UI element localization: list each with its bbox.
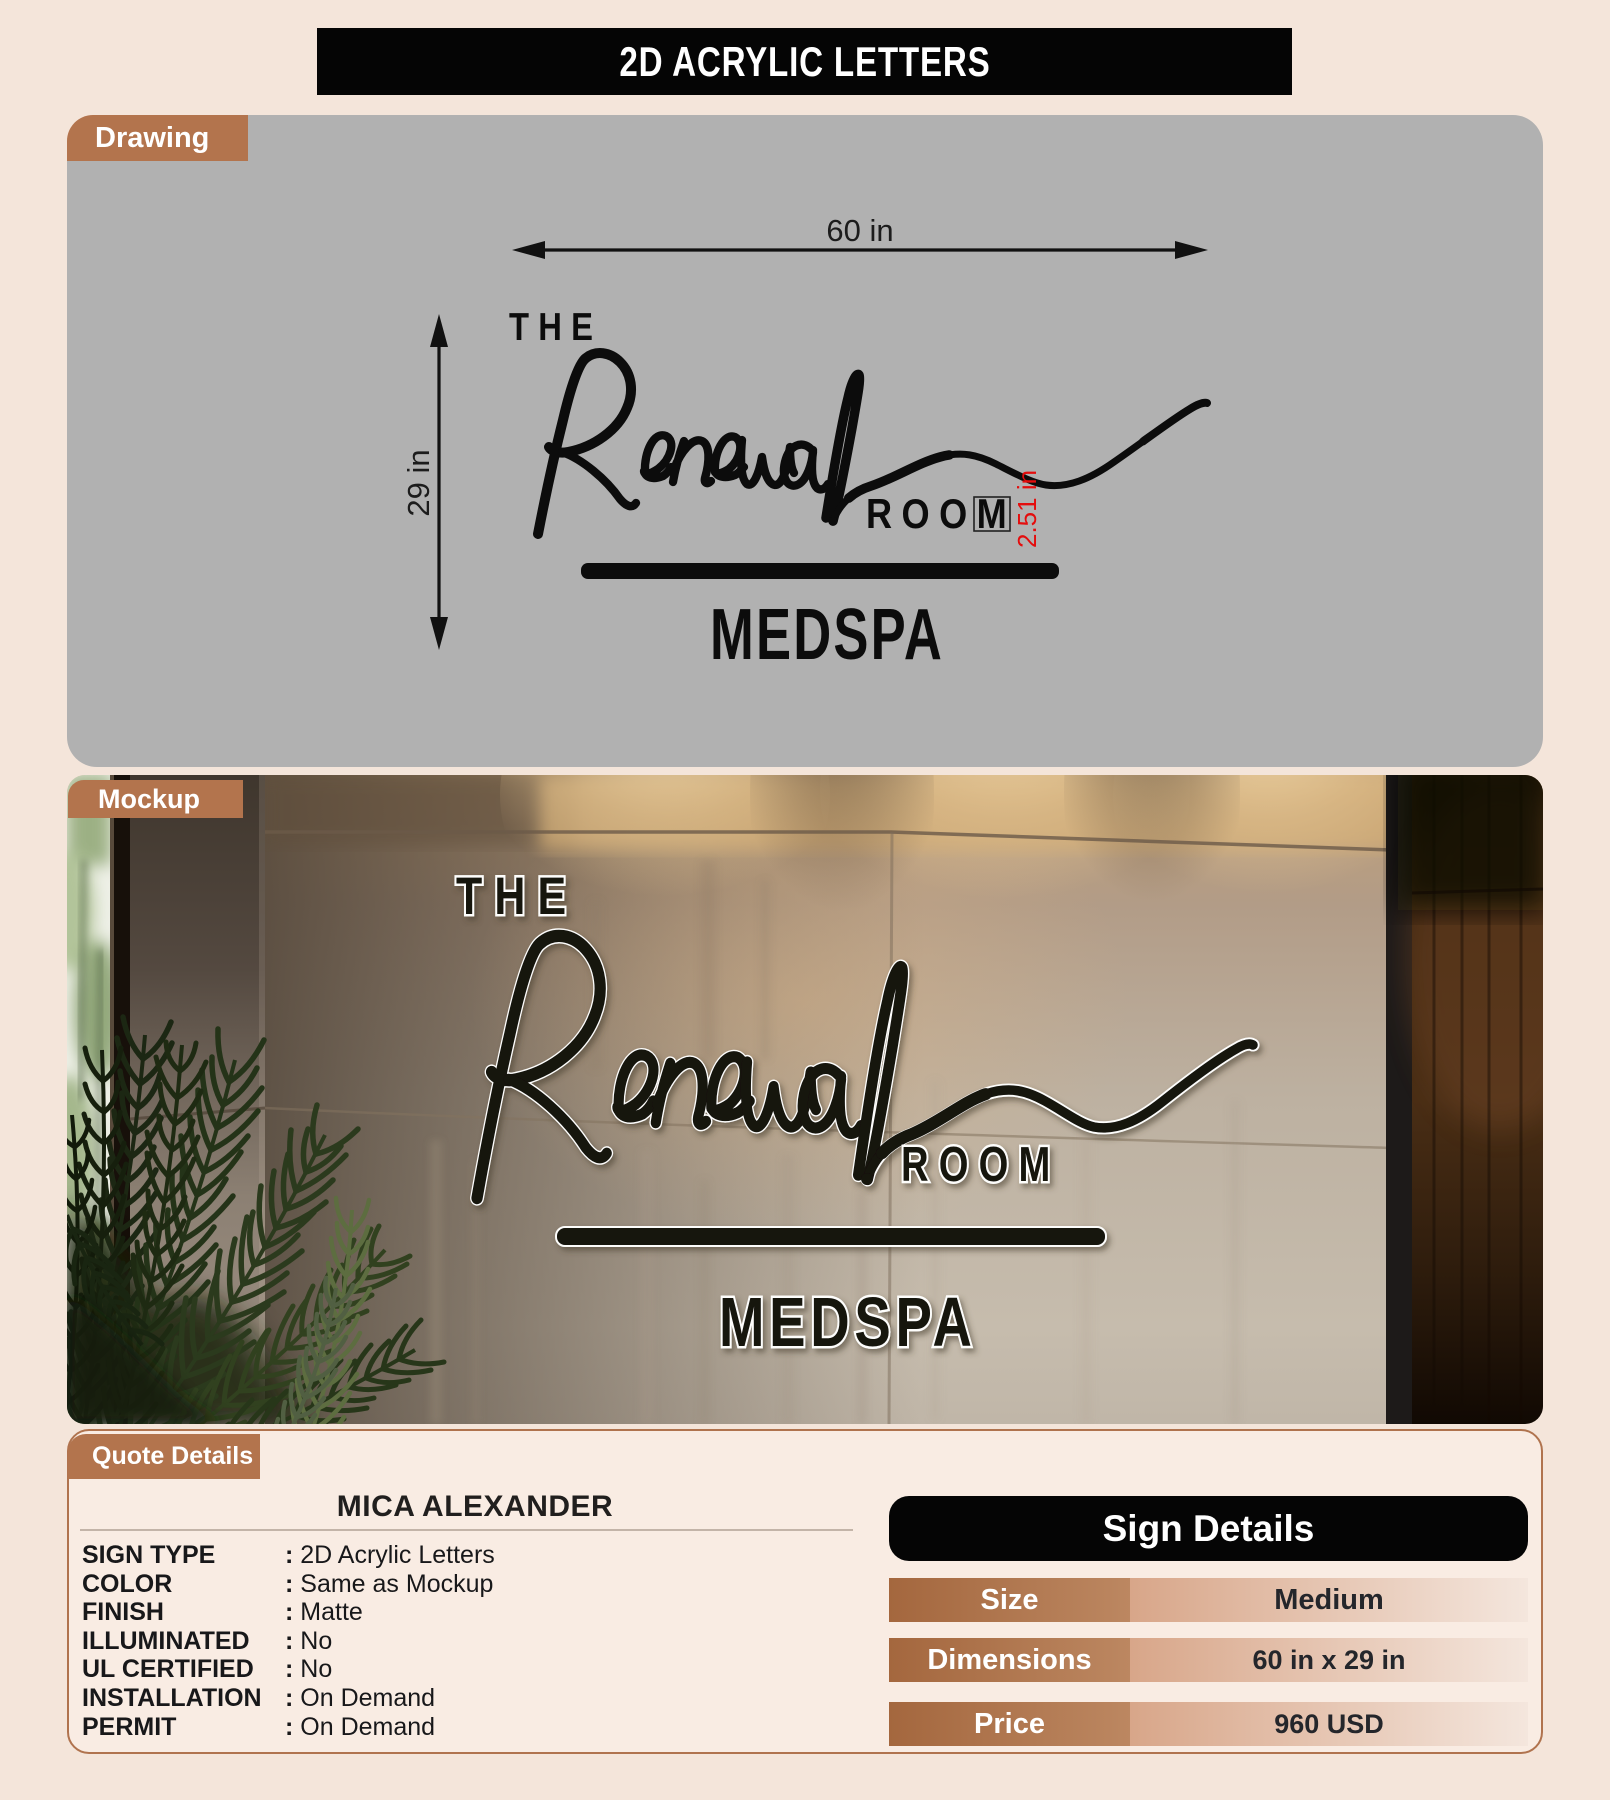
svg-text:60 in: 60 in <box>826 213 893 248</box>
svg-text:THE: THE <box>456 867 578 926</box>
svg-text:ROOM: ROOM <box>901 1138 1060 1193</box>
svg-text:29 in: 29 in <box>401 449 436 516</box>
svg-text:MEDSPA: MEDSPA <box>710 595 944 675</box>
svg-text:2.51 in: 2.51 in <box>1012 470 1042 548</box>
svg-text:MEDSPA: MEDSPA <box>719 1284 977 1362</box>
svg-text:THE: THE <box>509 304 602 348</box>
